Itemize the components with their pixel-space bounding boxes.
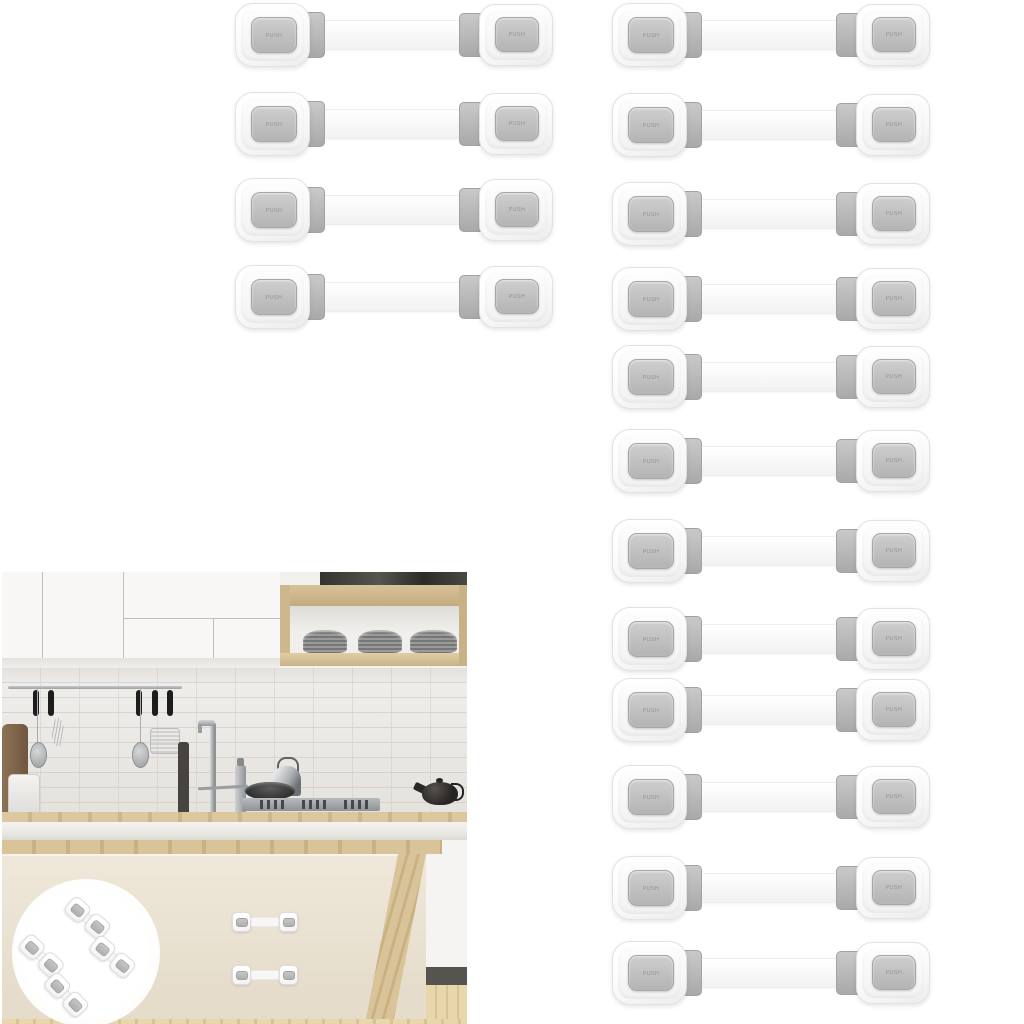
cabinet-seam	[213, 618, 214, 658]
safety-lock-unit: PUSH PUSH	[612, 428, 928, 492]
lock-buckle-right: PUSH	[856, 268, 930, 330]
hanging-basket	[150, 728, 180, 754]
lock-buckle-right: PUSH	[479, 179, 553, 241]
open-shelf-top-bar	[280, 585, 467, 606]
soap-dispenser-nozzle	[237, 758, 244, 766]
faucet-tip	[198, 724, 202, 733]
lock-buckle-right: PUSH	[856, 430, 930, 492]
island-countertop	[2, 822, 467, 840]
lock-buckle-right: PUSH	[856, 94, 930, 156]
lock-buckle-right	[279, 912, 298, 932]
island-door-top-edge	[2, 854, 426, 856]
lock-buckle-left: PUSH	[612, 941, 687, 1005]
push-button: PUSH	[872, 17, 916, 52]
safety-lock-unit: PUSH PUSH	[235, 177, 551, 241]
push-button: PUSH	[251, 192, 297, 228]
mini-safety-lock	[232, 964, 296, 984]
push-button: PUSH	[872, 281, 916, 316]
lock-buckle-left: PUSH	[612, 267, 687, 331]
push-button	[67, 997, 83, 1013]
push-button	[69, 902, 85, 918]
lock-strap	[690, 199, 848, 229]
ladle-stem	[140, 689, 141, 743]
lock-buckle-left: PUSH	[235, 3, 310, 67]
lock-strap	[690, 958, 848, 988]
safety-lock-unit: PUSH PUSH	[612, 181, 928, 245]
push-button	[89, 919, 105, 935]
lock-buckle-left: PUSH	[235, 265, 310, 329]
push-button: PUSH	[628, 870, 674, 906]
safety-lock-unit: PUSH PUSH	[612, 940, 928, 1004]
push-button: PUSH	[628, 359, 674, 395]
lock-buckle-right: PUSH	[479, 266, 553, 328]
ladle-stem	[37, 689, 38, 743]
safety-lock-unit: PUSH PUSH	[612, 344, 928, 408]
push-button: PUSH	[872, 779, 916, 814]
cabinet-seam	[123, 618, 280, 619]
push-button	[24, 940, 40, 956]
bottle	[178, 742, 189, 816]
push-button	[283, 918, 295, 927]
knife-handle	[136, 690, 142, 716]
push-button: PUSH	[628, 533, 674, 569]
lock-buckle-left: PUSH	[612, 607, 687, 671]
lock-buckle-right: PUSH	[856, 679, 930, 741]
push-button: PUSH	[628, 281, 674, 317]
push-button: PUSH	[872, 870, 916, 905]
knife-handle	[48, 690, 54, 716]
safety-lock-unit: PUSH PUSH	[235, 91, 551, 155]
safety-lock-unit: PUSH PUSH	[612, 92, 928, 156]
lock-strap	[690, 624, 848, 654]
push-button: PUSH	[872, 533, 916, 568]
toe-kick	[426, 967, 467, 985]
lock-buckle-right: PUSH	[479, 4, 553, 66]
lock-strap	[690, 110, 848, 140]
lock-buckle-right: PUSH	[856, 766, 930, 828]
shelf-post	[459, 585, 467, 666]
faucet	[210, 722, 216, 816]
safety-lock-unit: PUSH PUSH	[612, 677, 928, 741]
push-button: PUSH	[495, 192, 539, 227]
lock-buckle-right: PUSH	[856, 857, 930, 919]
mini-safety-lock	[232, 911, 296, 931]
push-button: PUSH	[495, 279, 539, 314]
lock-buckle-right: PUSH	[479, 93, 553, 155]
lock-buckle-right: PUSH	[856, 520, 930, 582]
upper-cabinets	[2, 572, 280, 658]
stove-grate	[344, 800, 370, 809]
push-button	[236, 918, 248, 927]
lock-strap	[313, 20, 471, 50]
lock-buckle-left: PUSH	[612, 345, 687, 409]
lock-buckle-left: PUSH	[235, 92, 310, 156]
push-button: PUSH	[628, 196, 674, 232]
push-button: PUSH	[628, 443, 674, 479]
shelf-board	[280, 653, 467, 666]
safety-lock-unit: PUSH PUSH	[612, 606, 928, 670]
push-button: PUSH	[872, 955, 916, 990]
kitchen-scene-photo	[2, 572, 467, 1024]
utensil-rail	[8, 686, 182, 689]
push-button: PUSH	[628, 17, 674, 53]
lock-strap	[690, 873, 848, 903]
knife-handle	[167, 690, 173, 716]
push-button: PUSH	[251, 106, 297, 142]
push-button	[49, 978, 65, 994]
safety-lock-unit: PUSH PUSH	[235, 264, 551, 328]
safety-lock-unit: PUSH PUSH	[612, 518, 928, 582]
safety-lock-unit: PUSH PUSH	[235, 2, 551, 66]
lock-buckle-right: PUSH	[856, 942, 930, 1004]
teapot-lid	[436, 778, 443, 783]
lock-strap	[313, 282, 471, 312]
push-button: PUSH	[628, 107, 674, 143]
knife-handle	[33, 690, 39, 716]
push-button: PUSH	[872, 621, 916, 656]
lock-buckle-right	[279, 965, 298, 985]
lock-buckle-right: PUSH	[856, 346, 930, 408]
push-button: PUSH	[872, 359, 916, 394]
push-button	[114, 958, 130, 974]
cabinet-seam	[123, 572, 124, 658]
lock-strap	[690, 20, 848, 50]
lock-strap	[690, 446, 848, 476]
push-button: PUSH	[628, 955, 674, 991]
lock-strap	[313, 109, 471, 139]
push-button: PUSH	[628, 779, 674, 815]
island-wood-trim	[2, 840, 442, 854]
lock-buckle-right: PUSH	[856, 4, 930, 66]
push-button: PUSH	[628, 621, 674, 657]
cabinet-underside	[2, 658, 280, 668]
push-button: PUSH	[495, 17, 539, 52]
push-button: PUSH	[495, 106, 539, 141]
safety-lock-unit: PUSH PUSH	[612, 855, 928, 919]
lock-buckle-left: PUSH	[612, 182, 687, 246]
push-button: PUSH	[251, 17, 297, 53]
plate-stack	[410, 630, 457, 653]
lock-strap	[313, 195, 471, 225]
lock-buckle-left: PUSH	[612, 519, 687, 583]
push-button: PUSH	[628, 692, 674, 728]
plate-stack	[358, 630, 402, 653]
plate-stack	[303, 630, 347, 653]
lock-buckle-left: PUSH	[612, 3, 687, 67]
stove-grate	[302, 800, 328, 809]
push-button: PUSH	[872, 196, 916, 231]
ladle-head	[30, 742, 47, 768]
lock-buckle-left: PUSH	[612, 856, 687, 920]
lock-strap	[690, 695, 848, 725]
lock-buckle-left: PUSH	[612, 678, 687, 742]
lock-strap	[690, 284, 848, 314]
whisk	[52, 718, 64, 746]
lock-strap	[690, 782, 848, 812]
push-button: PUSH	[872, 443, 916, 478]
ladle-head	[132, 742, 149, 768]
lock-strap	[690, 362, 848, 392]
product-listing-image: { "image": { "kind": "product-photo", "b…	[0, 0, 1024, 1024]
lock-buckle-right: PUSH	[856, 183, 930, 245]
safety-lock-unit: PUSH PUSH	[612, 266, 928, 330]
lock-buckle-left	[232, 965, 251, 985]
safety-lock-unit: PUSH PUSH	[612, 764, 928, 828]
push-button	[283, 971, 295, 980]
lock-strap	[690, 536, 848, 566]
push-button	[94, 941, 110, 957]
cabinet-seam	[42, 572, 43, 658]
lock-buckle-left: PUSH	[612, 93, 687, 157]
stove-grate	[260, 800, 286, 809]
lock-buckle-left: PUSH	[235, 178, 310, 242]
lock-buckle-right: PUSH	[856, 608, 930, 670]
lock-buckle-left: PUSH	[612, 429, 687, 493]
push-button	[236, 971, 248, 980]
push-button: PUSH	[872, 692, 916, 727]
back-counter-edge	[2, 812, 467, 822]
shelf-upper-compartment	[320, 572, 467, 586]
push-button: PUSH	[872, 107, 916, 142]
lock-buckle-left: PUSH	[612, 765, 687, 829]
push-button: PUSH	[251, 279, 297, 315]
safety-lock-unit: PUSH PUSH	[612, 2, 928, 66]
lock-buckle-left	[232, 912, 251, 932]
knife-handle	[152, 690, 158, 716]
